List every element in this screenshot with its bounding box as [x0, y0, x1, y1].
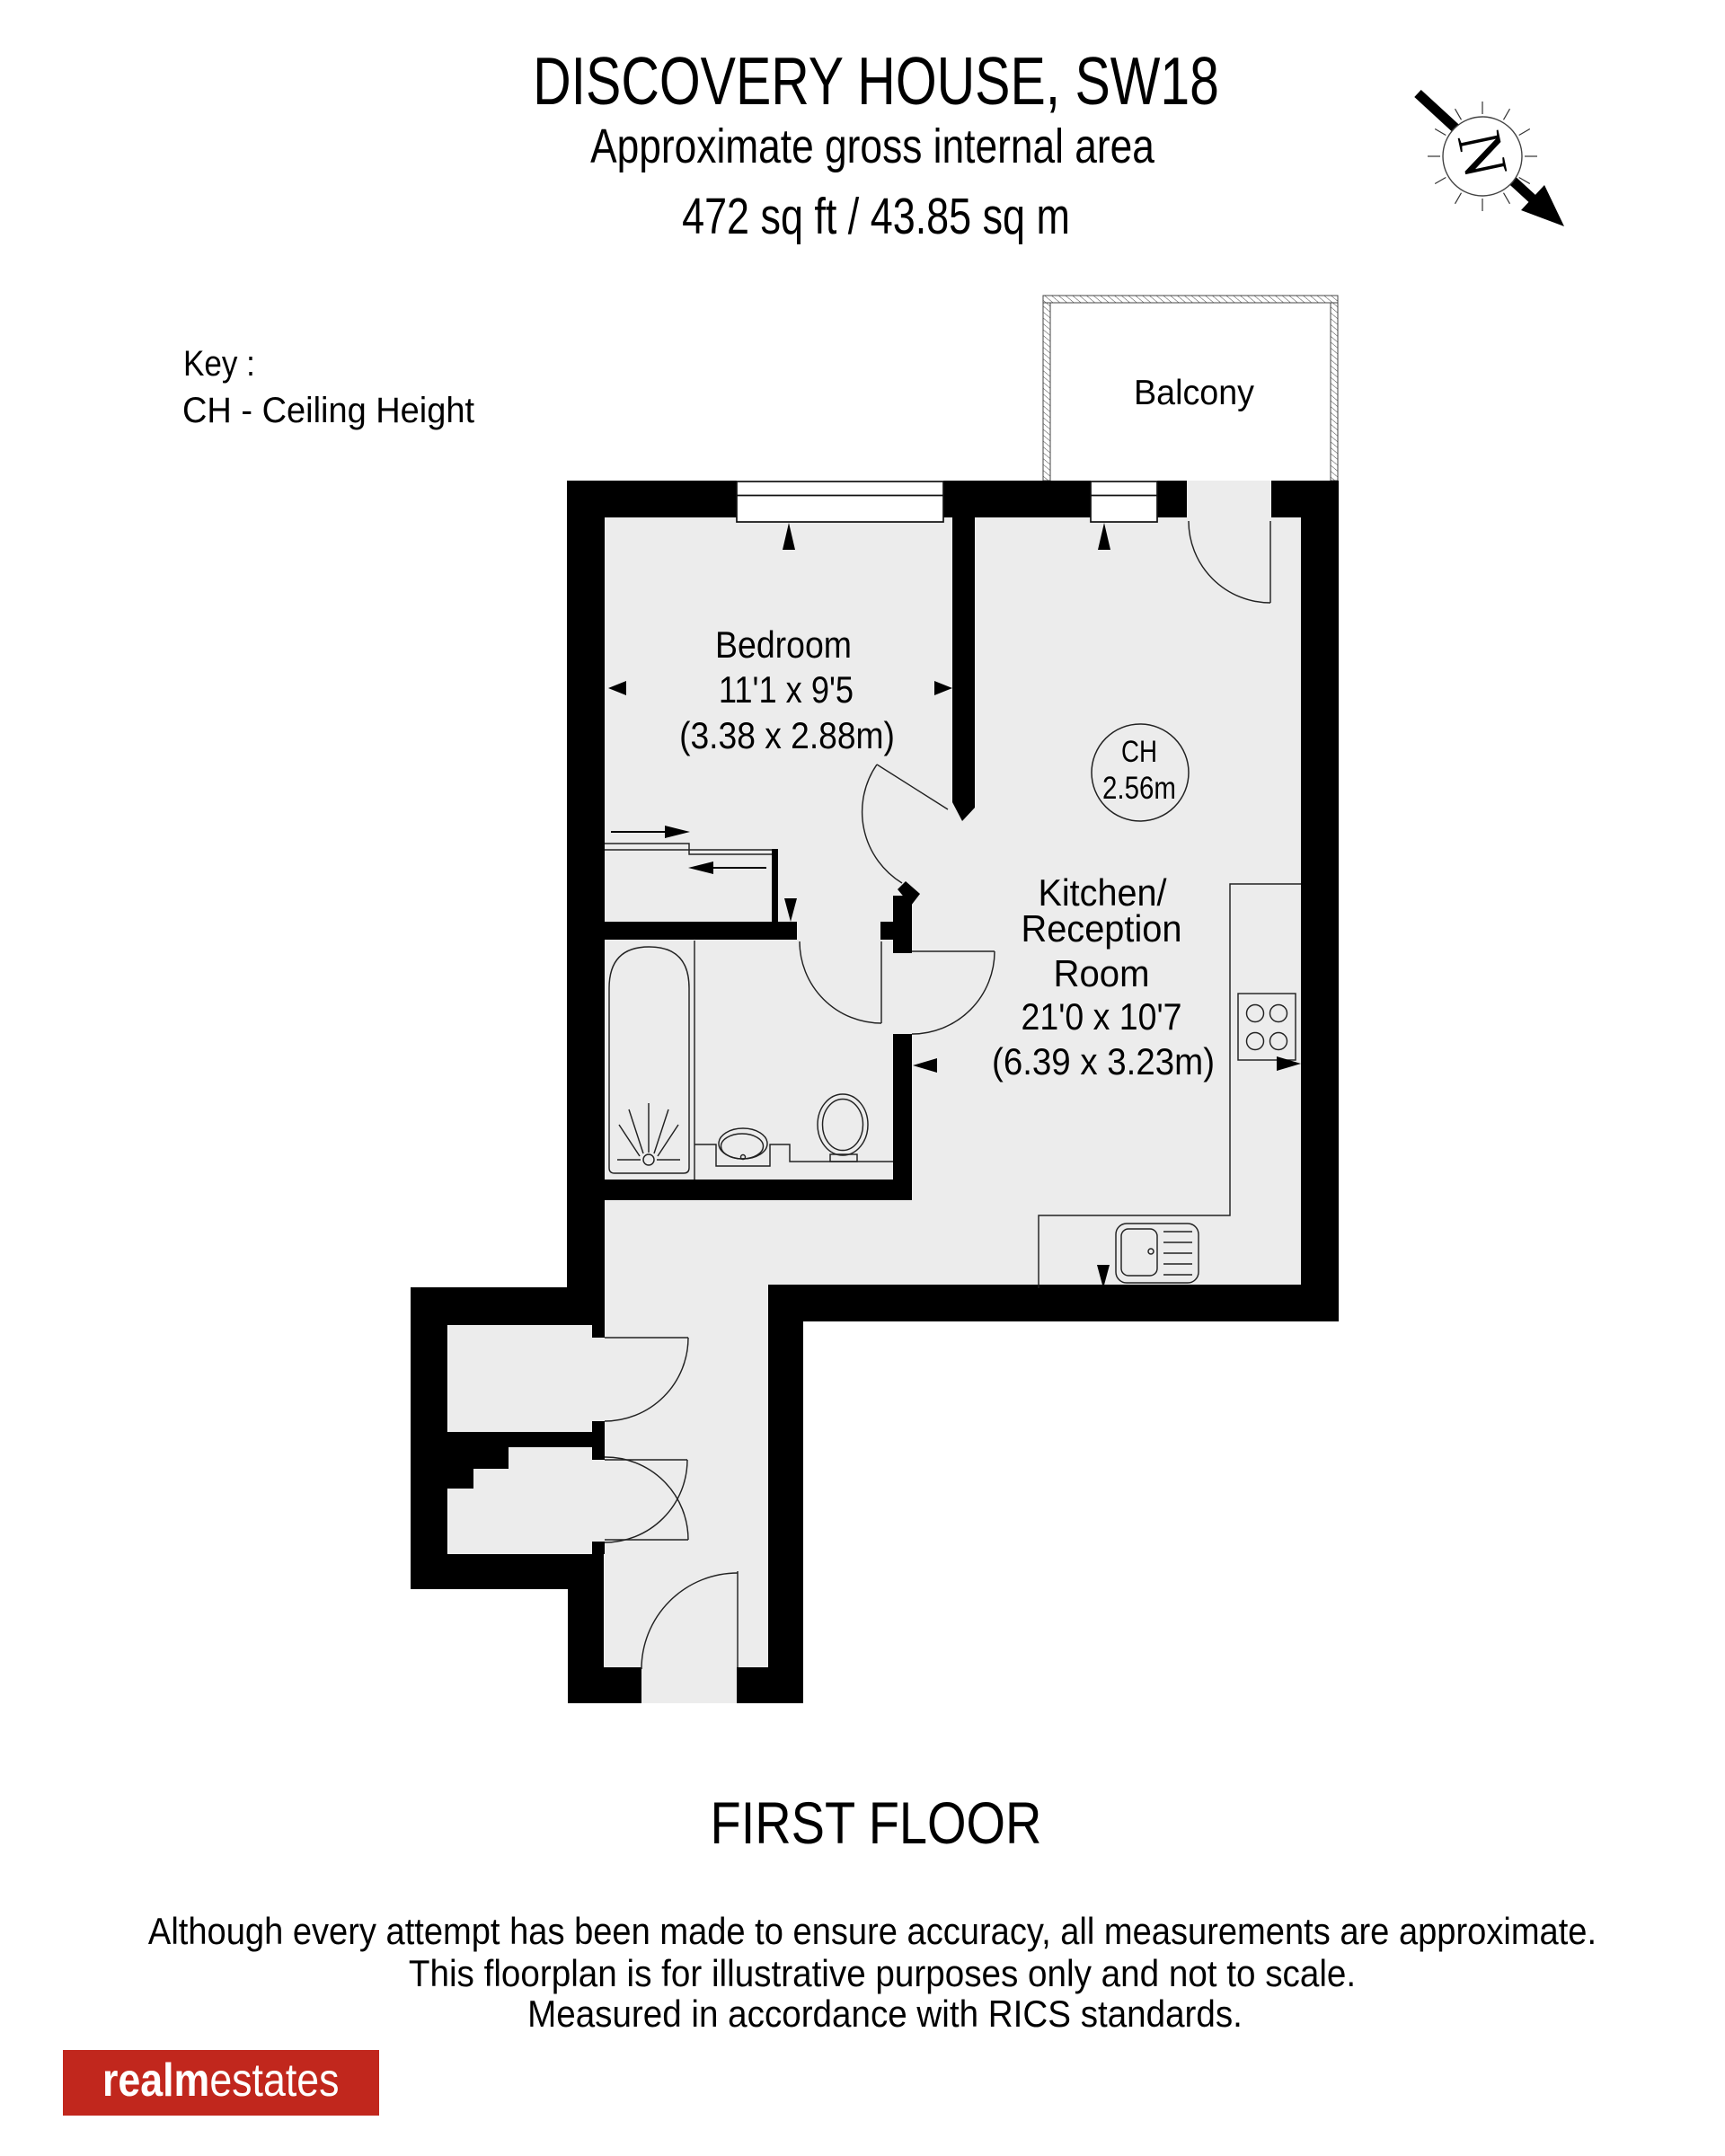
- svg-text:Reception: Reception: [1021, 907, 1181, 950]
- svg-text:Measured in accordance with RI: Measured in accordance with RICS standar…: [527, 1992, 1243, 2035]
- svg-text:CH - Ceiling Height: CH - Ceiling Height: [182, 391, 474, 430]
- svg-text:Balcony: Balcony: [1134, 373, 1255, 412]
- svg-text:(6.39 x 3.23m): (6.39 x 3.23m): [992, 1040, 1215, 1082]
- svg-text:DISCOVERY HOUSE, SW18: DISCOVERY HOUSE, SW18: [533, 44, 1219, 119]
- svg-text:Room: Room: [1054, 952, 1150, 994]
- svg-text:This floorplan is for illustra: This floorplan is for illustrative purpo…: [409, 1951, 1356, 1994]
- svg-text:11'1 x 9'5: 11'1 x 9'5: [719, 669, 854, 711]
- svg-text:Bedroom: Bedroom: [715, 624, 852, 666]
- svg-text:2.56m: 2.56m: [1102, 771, 1176, 806]
- svg-text:Although every attempt has bee: Although every attempt has been made to …: [148, 1911, 1597, 1952]
- svg-text:CH: CH: [1121, 734, 1157, 768]
- svg-text:realmestates: realmestates: [102, 2054, 339, 2107]
- svg-text:21'0 x 10'7: 21'0 x 10'7: [1022, 996, 1182, 1038]
- svg-text:Key :: Key :: [183, 343, 255, 384]
- svg-text:FIRST FLOOR: FIRST FLOOR: [711, 1790, 1042, 1856]
- svg-text:472 sq ft / 43.85 sq m: 472 sq ft / 43.85 sq m: [682, 188, 1070, 244]
- svg-text:(3.38 x 2.88m): (3.38 x 2.88m): [679, 715, 895, 757]
- svg-text:Approximate gross internal are: Approximate gross internal area: [590, 119, 1154, 173]
